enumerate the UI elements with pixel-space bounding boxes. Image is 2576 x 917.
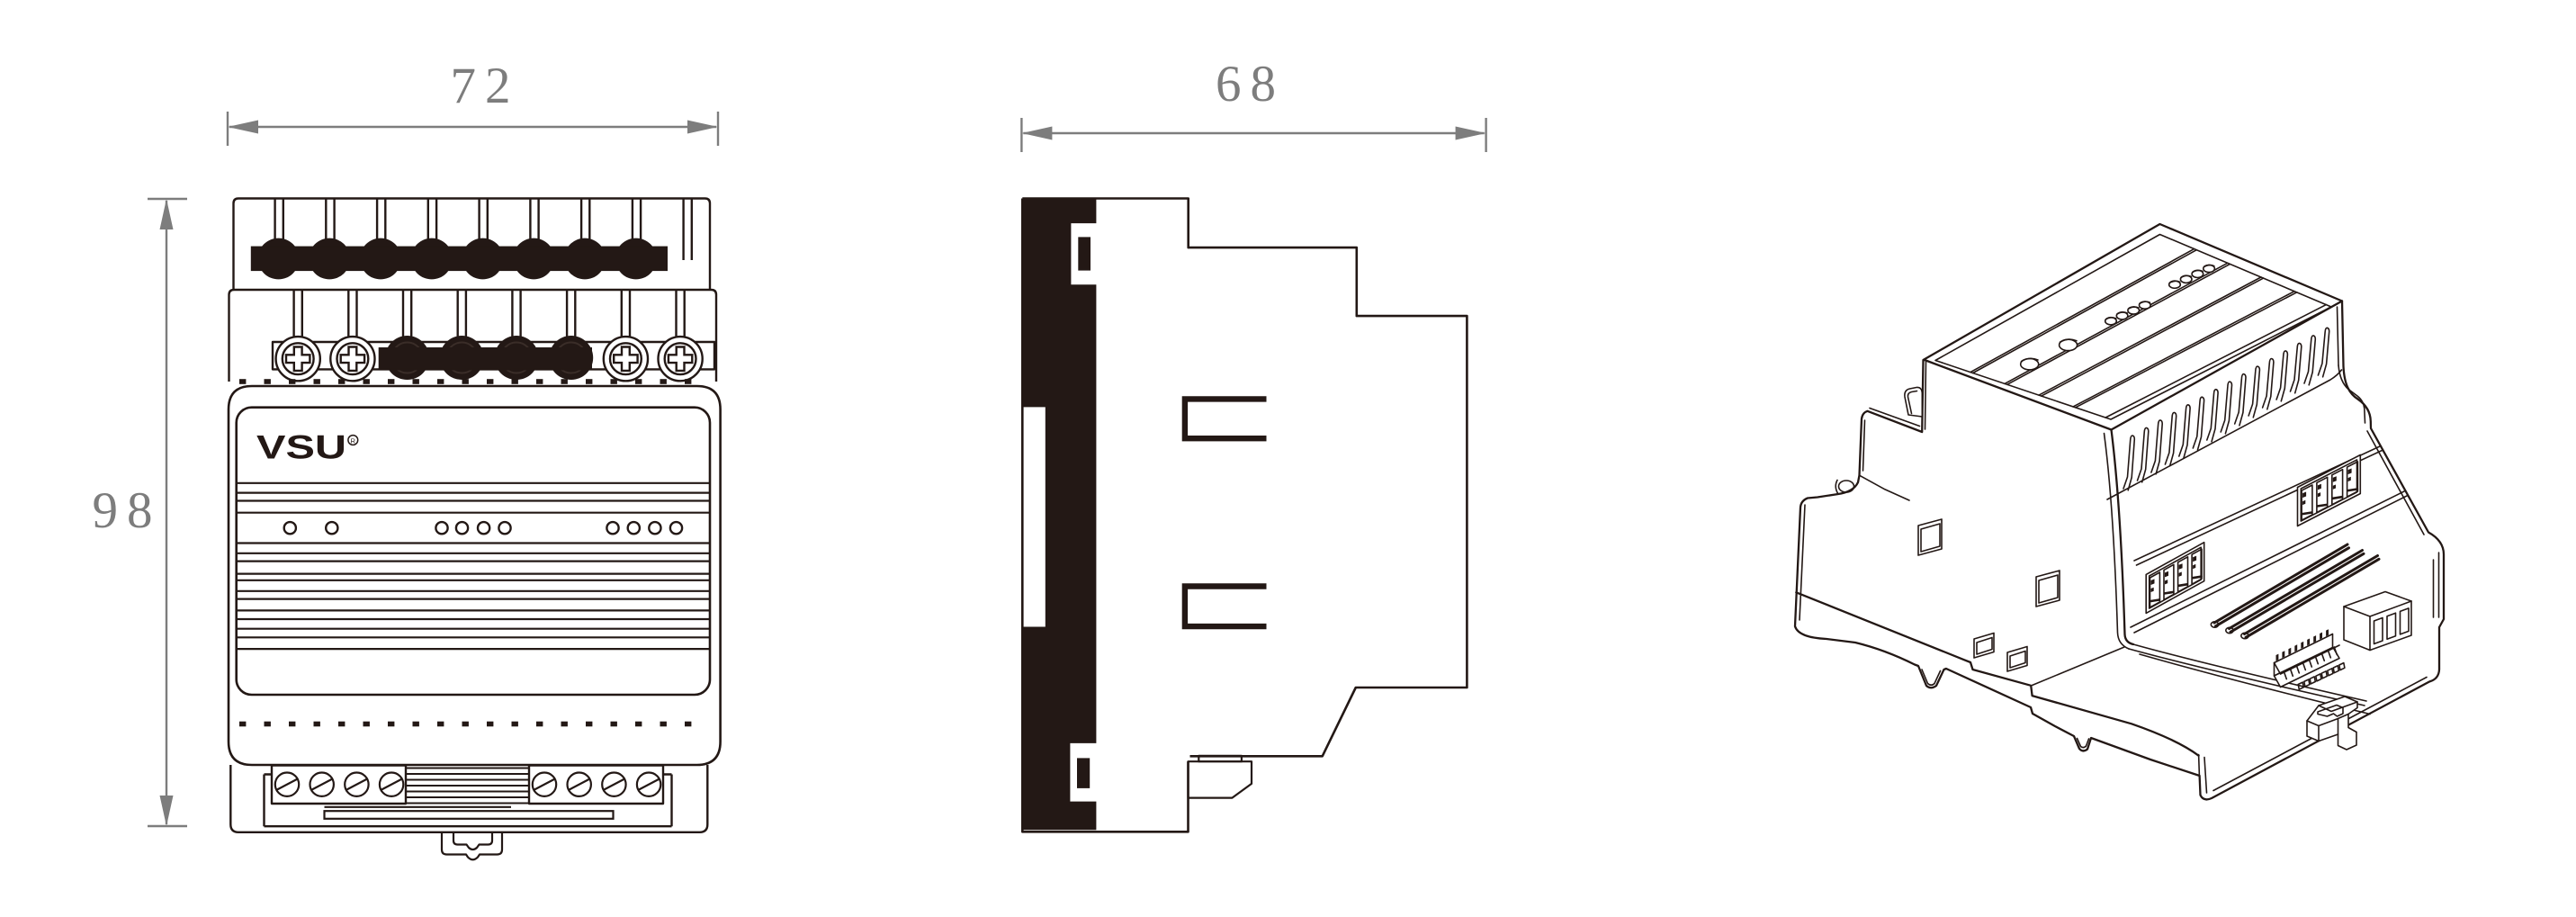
svg-text:VSU: VSU: [256, 429, 346, 466]
svg-text:R: R: [351, 436, 356, 445]
svg-text:68: 68: [1216, 56, 1285, 112]
svg-text:72: 72: [451, 58, 520, 114]
svg-text:98: 98: [93, 482, 162, 539]
